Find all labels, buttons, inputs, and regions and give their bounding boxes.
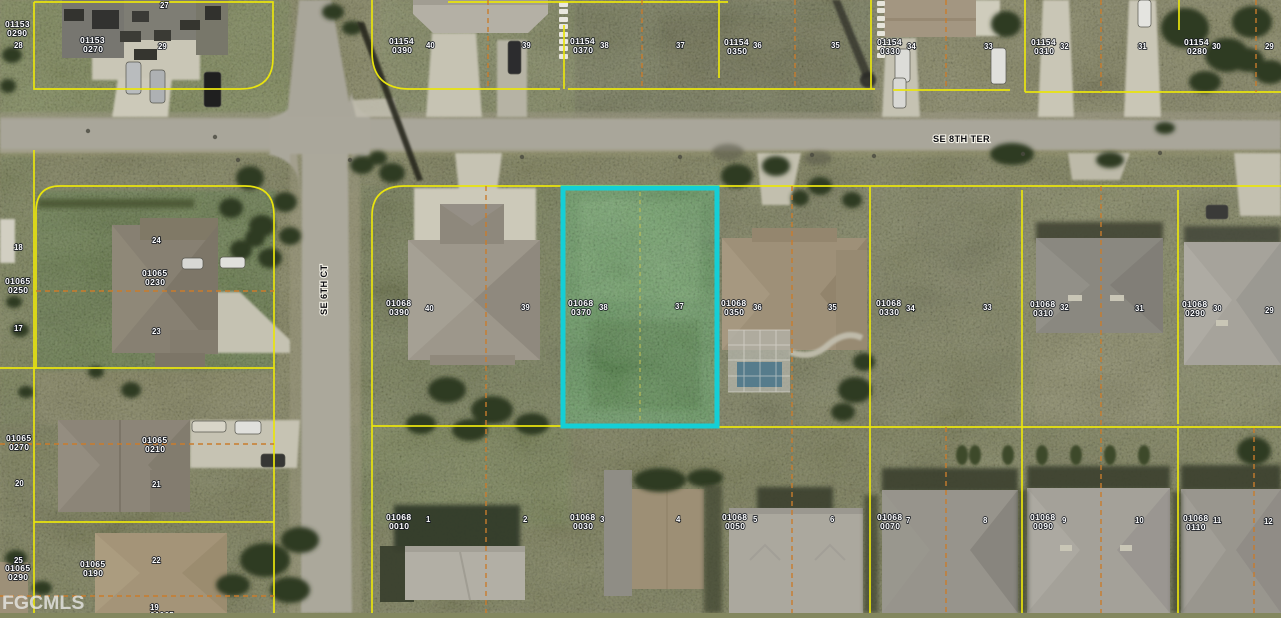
- svg-text:31: 31: [1135, 304, 1144, 313]
- svg-text:1: 1: [426, 515, 431, 524]
- svg-text:37: 37: [675, 302, 684, 311]
- svg-text:0350: 0350: [727, 47, 747, 56]
- svg-text:38: 38: [600, 41, 609, 50]
- svg-text:29: 29: [158, 42, 167, 51]
- svg-text:01068: 01068: [386, 299, 411, 308]
- svg-text:34: 34: [907, 42, 916, 51]
- svg-text:0290: 0290: [8, 573, 28, 582]
- svg-text:SE 6TH CT: SE 6TH CT: [319, 264, 329, 315]
- svg-text:01153: 01153: [5, 20, 30, 29]
- svg-text:01154: 01154: [724, 38, 749, 47]
- svg-text:01068: 01068: [568, 299, 593, 308]
- svg-text:0370: 0370: [571, 308, 591, 317]
- svg-text:0210: 0210: [145, 445, 165, 454]
- svg-text:0270: 0270: [9, 443, 29, 452]
- svg-text:0330: 0330: [880, 47, 900, 56]
- svg-text:2: 2: [523, 515, 528, 524]
- svg-text:01068: 01068: [876, 299, 901, 308]
- svg-text:01154: 01154: [570, 37, 595, 46]
- svg-text:SE 8TH TER: SE 8TH TER: [933, 134, 990, 144]
- svg-text:01154: 01154: [1031, 38, 1056, 47]
- svg-text:01068: 01068: [877, 513, 902, 522]
- svg-text:7: 7: [906, 516, 911, 525]
- svg-text:32: 32: [1060, 42, 1069, 51]
- svg-text:10: 10: [1135, 516, 1144, 525]
- svg-text:6: 6: [830, 515, 835, 524]
- svg-text:11: 11: [1213, 516, 1222, 525]
- svg-text:23: 23: [152, 327, 161, 336]
- svg-text:0030: 0030: [573, 522, 593, 531]
- svg-text:35: 35: [831, 41, 840, 50]
- svg-text:31: 31: [1138, 42, 1147, 51]
- svg-text:21: 21: [152, 480, 161, 489]
- svg-text:5: 5: [753, 515, 758, 524]
- svg-text:29: 29: [1265, 42, 1274, 51]
- svg-text:27: 27: [160, 1, 169, 10]
- svg-text:39: 39: [522, 41, 531, 50]
- svg-text:33: 33: [983, 303, 992, 312]
- svg-text:17: 17: [14, 324, 23, 333]
- svg-text:01065: 01065: [142, 436, 167, 445]
- svg-text:01068: 01068: [1030, 513, 1055, 522]
- svg-text:01153: 01153: [80, 36, 105, 45]
- svg-text:24: 24: [152, 236, 161, 245]
- svg-text:32: 32: [1060, 303, 1069, 312]
- svg-text:20: 20: [15, 479, 24, 488]
- svg-text:01065: 01065: [142, 269, 167, 278]
- svg-text:01068: 01068: [721, 299, 746, 308]
- svg-text:35: 35: [828, 303, 837, 312]
- svg-text:3: 3: [600, 515, 605, 524]
- svg-text:0090: 0090: [1033, 522, 1053, 531]
- svg-text:01154: 01154: [389, 37, 414, 46]
- svg-text:38: 38: [599, 303, 608, 312]
- svg-text:0230: 0230: [145, 278, 165, 287]
- svg-text:01065: 01065: [5, 564, 30, 573]
- svg-text:0370: 0370: [573, 46, 593, 55]
- svg-text:29: 29: [1265, 306, 1274, 315]
- svg-text:01065: 01065: [80, 560, 105, 569]
- svg-text:0290: 0290: [1185, 309, 1205, 318]
- svg-text:0110: 0110: [1186, 523, 1206, 532]
- svg-text:25: 25: [14, 556, 23, 565]
- svg-text:18: 18: [14, 243, 23, 252]
- svg-text:01068: 01068: [1030, 300, 1055, 309]
- svg-text:37: 37: [676, 41, 685, 50]
- svg-text:01065: 01065: [6, 434, 31, 443]
- svg-text:01154: 01154: [1184, 38, 1209, 47]
- svg-text:0010: 0010: [389, 522, 409, 531]
- svg-text:12: 12: [1264, 517, 1273, 526]
- svg-text:0310: 0310: [1034, 47, 1054, 56]
- svg-text:9: 9: [1062, 516, 1067, 525]
- svg-text:0280: 0280: [1187, 47, 1207, 56]
- svg-text:01068: 01068: [1183, 514, 1208, 523]
- svg-text:22: 22: [152, 556, 161, 565]
- svg-text:40: 40: [425, 304, 434, 313]
- svg-text:39: 39: [521, 303, 530, 312]
- svg-text:0270: 0270: [83, 45, 103, 54]
- svg-text:0330: 0330: [879, 308, 899, 317]
- svg-text:30: 30: [1212, 42, 1221, 51]
- svg-text:4: 4: [676, 515, 681, 524]
- svg-text:01065: 01065: [5, 277, 30, 286]
- svg-text:40: 40: [426, 41, 435, 50]
- svg-text:36: 36: [753, 303, 762, 312]
- svg-text:8: 8: [983, 516, 988, 525]
- svg-text:FGCMLS: FGCMLS: [2, 592, 84, 613]
- svg-text:01068: 01068: [722, 513, 747, 522]
- svg-text:0070: 0070: [880, 522, 900, 531]
- svg-text:0390: 0390: [392, 46, 412, 55]
- svg-text:0250: 0250: [8, 286, 28, 295]
- svg-text:0310: 0310: [1033, 309, 1053, 318]
- svg-text:30: 30: [1213, 304, 1222, 313]
- svg-text:01068: 01068: [1182, 300, 1207, 309]
- svg-text:33: 33: [984, 42, 993, 51]
- svg-text:01154: 01154: [877, 38, 902, 47]
- svg-text:36: 36: [753, 41, 762, 50]
- svg-text:0050: 0050: [725, 522, 745, 531]
- svg-text:01068: 01068: [386, 513, 411, 522]
- svg-text:01068: 01068: [570, 513, 595, 522]
- svg-text:0390: 0390: [389, 308, 409, 317]
- svg-text:34: 34: [906, 304, 915, 313]
- svg-text:0350: 0350: [724, 308, 744, 317]
- svg-text:28: 28: [14, 41, 23, 50]
- svg-text:0290: 0290: [7, 29, 27, 38]
- svg-text:0190: 0190: [83, 569, 103, 578]
